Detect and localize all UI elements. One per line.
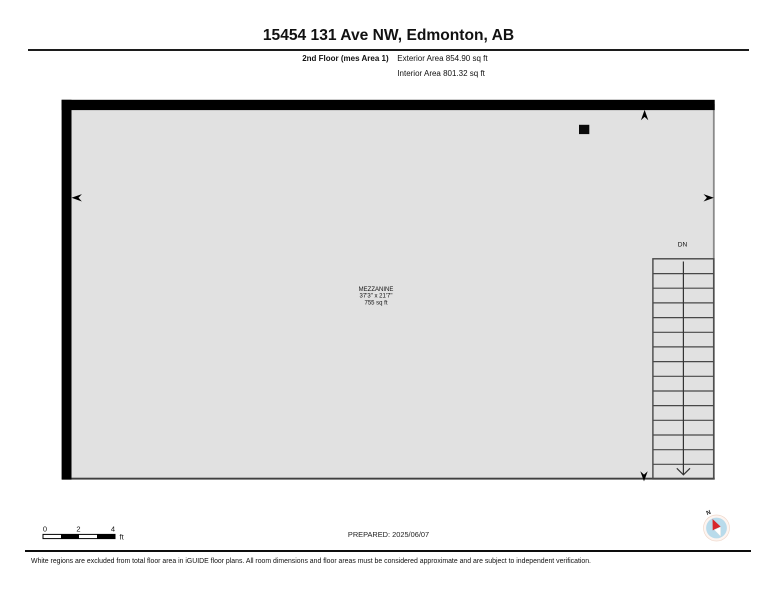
svg-text:755 sq ft: 755 sq ft: [364, 300, 387, 306]
svg-text:MEZZANINE: MEZZANINE: [359, 287, 394, 293]
svg-text:DN: DN: [678, 242, 688, 249]
svg-text:37'3" x 21'7": 37'3" x 21'7": [360, 294, 393, 300]
